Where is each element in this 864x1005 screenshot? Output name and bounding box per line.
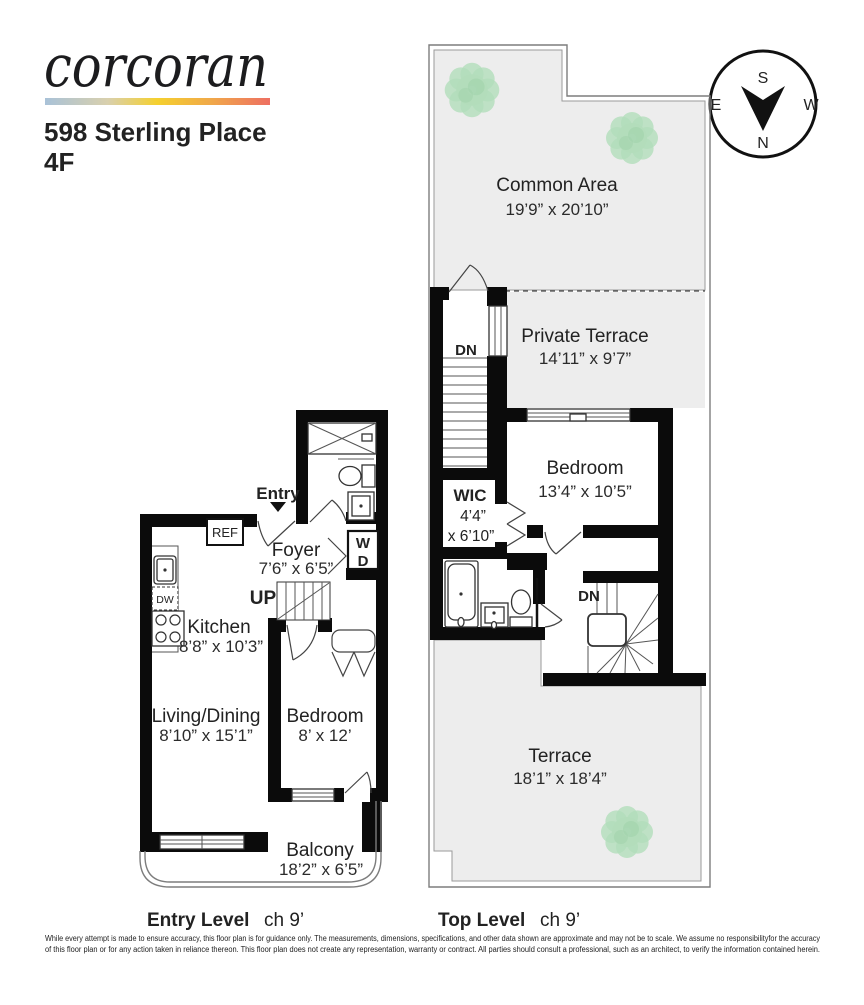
top-level-ceiling-height: ch 9’ (540, 910, 580, 931)
top-level-caption: Top Level (438, 910, 525, 931)
common-area-dims: 19’9” x 20’10” (505, 200, 608, 219)
compass-rose: S E W N (710, 51, 819, 157)
foyer-label: Foyer (272, 540, 321, 561)
balcony-dims: 18’2” x 6’5” (279, 860, 363, 879)
toilet-icon (512, 590, 531, 614)
kitchen-label: Kitchen (187, 617, 250, 638)
top-level-bathroom-fixtures (445, 561, 537, 629)
wic-label: WIC (453, 486, 486, 505)
disclaimer-line2: of this floor plan or for any action tak… (45, 945, 820, 954)
entry-level-plan: DW REF W D (140, 410, 388, 887)
bathroom-door (310, 500, 346, 522)
entry-arrow-icon (270, 502, 286, 512)
bedroom-door (287, 625, 317, 660)
stairs-dn-lower-label: DN (578, 588, 600, 605)
entry-bedroom-label: Bedroom (286, 706, 363, 727)
bedroom-closet (332, 630, 375, 676)
staircase-down-upper (443, 358, 487, 466)
plant-icon (606, 112, 658, 164)
compass-north: N (757, 135, 769, 152)
entry-bedroom-dims: 8’ x 12’ (298, 726, 351, 745)
corcoran-logo: corcoran (44, 32, 268, 100)
stairs-dn-upper-label: DN (455, 342, 477, 359)
top-bedroom-dims: 13’4” x 10’5” (538, 482, 632, 501)
wic-dims-line1: 4’4” (460, 508, 486, 525)
refrigerator-label: REF (212, 525, 238, 540)
stairs-up-label: UP (250, 588, 277, 609)
entry-bathroom-fixtures (308, 423, 376, 520)
private-terrace-label: Private Terrace (521, 326, 648, 347)
brand-header: corcoran 598 Sterling Place 4F (44, 32, 270, 177)
plan-captions: Entry Level ch 9’ Top Level ch 9’ (147, 910, 580, 931)
living-dining-label: Living/Dining (152, 706, 261, 727)
compass-east: E (711, 97, 722, 114)
washer-label: W (356, 535, 371, 552)
staircase-up (277, 582, 330, 620)
entry-level-caption: Entry Level (147, 910, 249, 931)
private-terrace-dims: 14’11” x 9’7” (539, 349, 632, 368)
living-dining-dims: 8’10” x 15’1” (159, 726, 253, 745)
top-level-plan: Common Area 19’9” x 20’10” Private Terra… (429, 45, 710, 887)
compass-west: W (803, 97, 819, 114)
terrace-dims: 18’1” x 18’4” (513, 769, 607, 788)
floorplan-page: corcoran 598 Sterling Place 4F S E W N (0, 0, 864, 1000)
dryer-label: D (358, 553, 369, 570)
terrace-label: Terrace (528, 746, 591, 767)
disclaimer: While every attempt is made to ensure ac… (45, 934, 820, 954)
address-line1: 598 Sterling Place (44, 117, 267, 147)
wic-dims-line2: x 6’10” (448, 528, 495, 545)
disclaimer-line1: While every attempt is made to ensure ac… (45, 934, 820, 943)
balcony-door (345, 772, 371, 793)
plant-icon (445, 63, 500, 118)
closet-bifold-doors (332, 652, 375, 676)
plant-icon (601, 806, 653, 858)
entry-label: Entry (256, 484, 300, 503)
compass-south: S (758, 70, 769, 87)
wic-bifold-doors (507, 502, 525, 546)
top-bedroom-label: Bedroom (546, 458, 623, 479)
foyer-dims: 7’6” x 6’5” (259, 559, 334, 578)
floorplan-canvas: corcoran 598 Sterling Place 4F S E W N (0, 0, 864, 1000)
brand-gradient-bar (45, 98, 270, 105)
balcony-label: Balcony (286, 840, 354, 861)
entry-level-ceiling-height: ch 9’ (264, 910, 304, 931)
toilet-icon (339, 467, 361, 486)
kitchen-dims: 8’8” x 10’3” (179, 637, 263, 656)
address-line2: 4F (44, 147, 74, 177)
common-area-label: Common Area (496, 175, 618, 196)
dishwasher-label: DW (156, 594, 174, 606)
